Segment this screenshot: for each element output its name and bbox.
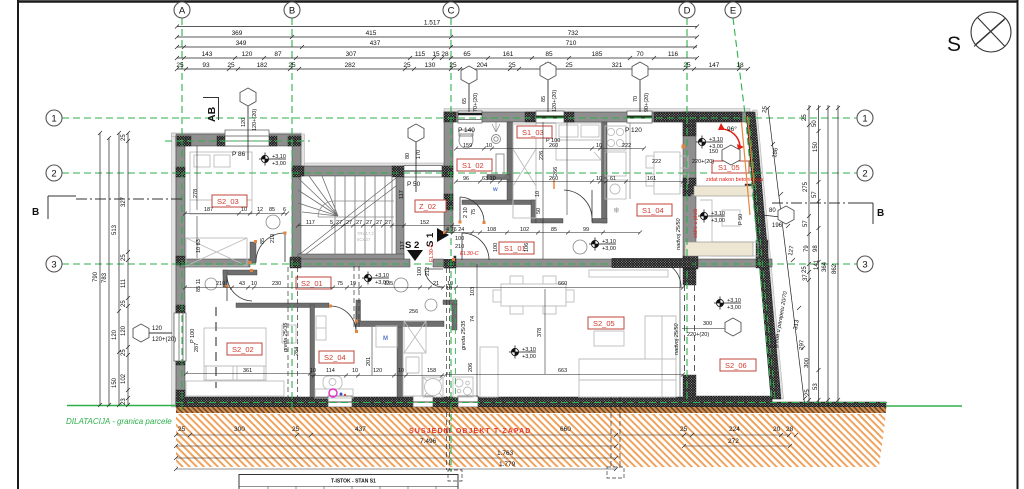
svg-text:230: 230	[272, 281, 281, 287]
svg-text:+3,00: +3,00	[727, 305, 741, 311]
svg-text:50: 50	[812, 120, 818, 127]
svg-text:S1_01: S1_01	[504, 244, 526, 253]
svg-text:212: 212	[425, 267, 431, 276]
svg-text:25: 25	[176, 62, 184, 69]
svg-text:204: 204	[477, 62, 488, 69]
svg-text:Z_02: Z_02	[419, 202, 436, 211]
svg-text:85: 85	[260, 238, 266, 244]
svg-text:E: E	[730, 6, 736, 17]
svg-text:M: M	[383, 336, 388, 342]
svg-text:321: 321	[612, 62, 623, 69]
svg-text:10: 10	[398, 368, 404, 374]
svg-text:57: 57	[812, 191, 818, 198]
svg-text:130: 130	[425, 62, 436, 69]
svg-text:+3,00: +3,00	[602, 246, 616, 252]
svg-text:28: 28	[441, 51, 449, 58]
svg-text:+3,00: +3,00	[272, 161, 286, 167]
svg-text:27: 27	[356, 220, 362, 226]
svg-text:B: B	[289, 6, 295, 17]
svg-text:P 120: P 120	[625, 127, 642, 134]
svg-text:224: 224	[729, 426, 740, 433]
svg-text:275: 275	[803, 181, 809, 192]
svg-text:116: 116	[668, 51, 679, 58]
svg-text:300: 300	[703, 321, 712, 327]
svg-text:85: 85	[545, 51, 553, 58]
svg-text:37: 37	[803, 274, 809, 281]
svg-text:DILATACIJA - granica parcele: DILATACIJA - granica parcele	[66, 417, 172, 426]
svg-text:+3,10: +3,10	[272, 154, 286, 160]
svg-text:349: 349	[236, 40, 247, 47]
svg-text:S2_05: S2_05	[593, 319, 615, 328]
svg-text:18: 18	[736, 62, 744, 69]
svg-text:278: 278	[193, 189, 199, 198]
svg-text:25: 25	[449, 62, 457, 69]
svg-text:6Cx 27: 6Cx 27	[357, 237, 371, 242]
svg-text:27: 27	[376, 220, 382, 226]
svg-text:103: 103	[470, 287, 476, 296]
svg-text:nadvoj 25/50: nadvoj 25/50	[674, 323, 680, 355]
svg-text:P 140: P 140	[458, 127, 475, 134]
svg-text:+3,00: +3,00	[711, 218, 725, 224]
svg-text:660: 660	[560, 426, 571, 433]
svg-text:P 50: P 50	[738, 214, 744, 225]
svg-text:10: 10	[446, 286, 452, 292]
svg-text:10: 10	[251, 281, 257, 287]
svg-text:greda 25/35: greda 25/35	[461, 320, 467, 350]
svg-text:EL30-C: EL30-C	[460, 251, 479, 257]
svg-text:21: 21	[433, 281, 439, 287]
svg-text:96°: 96°	[727, 125, 737, 133]
svg-text:120+(20): 120+(20)	[152, 337, 176, 343]
svg-text:102: 102	[520, 227, 529, 233]
svg-text:135: 135	[384, 281, 393, 287]
svg-text:117: 117	[306, 220, 315, 226]
svg-text:S1_05: S1_05	[718, 163, 740, 172]
svg-text:7.496: 7.496	[420, 438, 437, 445]
svg-text:25: 25	[227, 62, 235, 69]
svg-text:25: 25	[121, 300, 127, 307]
svg-text:220+(20): 220+(20)	[692, 159, 714, 165]
svg-text:117: 117	[399, 190, 405, 199]
svg-text:437: 437	[355, 426, 366, 433]
svg-text:660: 660	[558, 281, 567, 287]
svg-text:307: 307	[346, 51, 357, 58]
svg-text:25: 25	[683, 62, 691, 69]
svg-text:143: 143	[202, 51, 213, 58]
svg-text:256: 256	[409, 309, 418, 315]
svg-text:25: 25	[565, 62, 573, 69]
svg-text:266: 266	[553, 167, 559, 176]
svg-text:S1_04: S1_04	[642, 206, 664, 215]
svg-text:85: 85	[551, 227, 557, 233]
svg-text:65: 65	[462, 98, 468, 104]
svg-text:25: 25	[403, 62, 411, 69]
svg-text:zidat nakon betoniranja: zidat nakon betoniranja	[706, 177, 764, 183]
svg-text:10: 10	[486, 143, 492, 149]
svg-text:222: 222	[622, 143, 631, 149]
svg-text:25: 25	[762, 105, 769, 113]
svg-text:10: 10	[352, 368, 358, 374]
svg-text:1: 1	[862, 114, 867, 125]
svg-text:20: 20	[773, 426, 781, 433]
svg-text:1.763: 1.763	[497, 450, 514, 457]
svg-text:74: 74	[470, 316, 476, 322]
svg-text:222: 222	[652, 159, 661, 165]
svg-text:513: 513	[112, 224, 118, 235]
svg-text:364: 364	[822, 261, 828, 272]
svg-text:80: 80	[405, 153, 411, 159]
svg-text:sidro u ploči: sidro u ploči	[693, 209, 699, 238]
svg-text:378: 378	[537, 328, 543, 337]
svg-text:27: 27	[366, 220, 372, 226]
svg-text:710: 710	[566, 40, 577, 47]
svg-text:102: 102	[121, 373, 127, 384]
svg-text:120: 120	[241, 118, 247, 127]
svg-text:+3,00: +3,00	[522, 354, 536, 360]
svg-text:25: 25	[680, 426, 688, 433]
svg-text:70: 70	[633, 96, 639, 102]
svg-text:201: 201	[366, 357, 372, 366]
svg-text:85 11: 85 11	[196, 279, 202, 292]
svg-text:S2_04: S2_04	[324, 353, 346, 362]
svg-text:+3,10: +3,10	[602, 239, 616, 245]
svg-text:98: 98	[813, 245, 819, 252]
svg-text:AB: AB	[206, 106, 218, 122]
svg-text:S2_06: S2_06	[725, 361, 747, 370]
svg-text:70: 70	[636, 51, 644, 58]
svg-text:300: 300	[234, 426, 245, 433]
svg-text:147: 147	[709, 62, 720, 69]
svg-text:150: 150	[813, 141, 819, 152]
svg-text:S 2: S 2	[405, 240, 419, 251]
svg-text:87: 87	[274, 51, 282, 58]
svg-text:28: 28	[786, 426, 794, 433]
svg-text:327: 327	[121, 196, 127, 207]
svg-text:185: 185	[592, 51, 603, 58]
svg-text:187: 187	[204, 207, 213, 213]
svg-text:65: 65	[463, 51, 471, 58]
svg-text:120: 120	[121, 325, 127, 336]
svg-text:108: 108	[487, 227, 496, 233]
svg-text:114: 114	[326, 368, 335, 374]
svg-text:75: 75	[337, 281, 343, 287]
svg-text:120: 120	[373, 368, 382, 374]
svg-text:3: 3	[862, 260, 867, 271]
svg-text:862: 862	[832, 263, 838, 274]
svg-text:C: C	[448, 6, 455, 17]
svg-text:25: 25	[288, 62, 296, 69]
svg-text:P 100: P 100	[190, 329, 196, 343]
svg-text:117: 117	[400, 241, 406, 250]
svg-text:220+(20): 220+(20)	[687, 332, 709, 338]
svg-text:287: 287	[194, 343, 200, 352]
svg-text:23: 23	[121, 398, 127, 405]
svg-text:15: 15	[432, 51, 440, 58]
svg-text:D: D	[684, 6, 691, 17]
svg-text:6: 6	[283, 207, 286, 213]
svg-text:369: 369	[232, 30, 243, 37]
svg-text:P 50: P 50	[407, 181, 421, 188]
svg-text:2: 2	[862, 169, 867, 180]
svg-text:25: 25	[121, 349, 127, 356]
svg-text:25: 25	[805, 389, 811, 396]
svg-text:w: w	[492, 187, 498, 193]
svg-text:206: 206	[468, 363, 474, 372]
svg-text:663: 663	[558, 368, 567, 374]
svg-text:120: 120	[152, 326, 163, 332]
svg-text:61: 61	[610, 176, 616, 182]
svg-text:297: 297	[799, 339, 806, 350]
svg-text:27: 27	[336, 220, 342, 226]
svg-text:1.517: 1.517	[424, 20, 441, 27]
svg-text:25: 25	[802, 114, 808, 121]
svg-text:182: 182	[257, 62, 268, 69]
svg-text:100: 100	[455, 236, 464, 242]
svg-text:S1_02: S1_02	[462, 161, 484, 170]
svg-text:19: 19	[350, 281, 356, 287]
svg-text:25: 25	[178, 426, 186, 433]
svg-text:+3,10: +3,10	[522, 347, 536, 353]
svg-text:272: 272	[728, 438, 739, 445]
svg-text:85: 85	[541, 96, 547, 102]
svg-text:3: 3	[51, 260, 56, 271]
svg-text:43: 43	[239, 281, 245, 287]
svg-text:10: 10	[241, 207, 247, 213]
svg-text:115: 115	[415, 51, 426, 58]
svg-text:63 10: 63 10	[482, 176, 496, 182]
svg-text:27: 27	[346, 220, 352, 226]
svg-text:70+(20): 70+(20)	[473, 93, 479, 112]
svg-text:27: 27	[385, 220, 391, 226]
svg-text:85: 85	[269, 207, 275, 213]
svg-text:196: 196	[772, 223, 783, 229]
svg-text:SUSJEDNI OBJEKT T-ZAPAD: SUSJEDNI OBJEKT T-ZAPAD	[409, 428, 531, 435]
svg-text:B: B	[877, 208, 884, 219]
svg-text:120+(20): 120+(20)	[252, 109, 258, 131]
svg-text:210: 210	[270, 234, 276, 243]
svg-text:120: 120	[242, 51, 253, 58]
svg-text:111: 111	[121, 278, 127, 288]
svg-text:120+(20): 120+(20)	[552, 90, 558, 112]
svg-text:783: 783	[102, 272, 108, 283]
svg-text:150: 150	[709, 149, 718, 155]
svg-text:EL30-C: EL30-C	[429, 243, 435, 262]
svg-text:S1_03: S1_03	[522, 128, 544, 137]
svg-text:75: 75	[471, 209, 477, 215]
svg-text:96: 96	[463, 176, 469, 182]
svg-text:161: 161	[503, 51, 514, 58]
svg-text:P 86: P 86	[232, 151, 246, 158]
svg-text:10: 10	[535, 191, 541, 197]
svg-text:S2_02: S2_02	[232, 345, 254, 354]
svg-text:300: 300	[804, 357, 810, 368]
svg-text:10 63: 10 63	[196, 239, 202, 253]
svg-text:284: 284	[294, 347, 300, 356]
svg-text:53: 53	[813, 383, 819, 390]
svg-text:50: 50	[536, 208, 542, 214]
svg-text:A: A	[179, 6, 186, 17]
svg-text:S2_01: S2_01	[301, 279, 323, 288]
svg-text:+3,10: +3,10	[375, 273, 389, 279]
svg-text:120: 120	[112, 329, 118, 340]
svg-text:361: 361	[243, 368, 252, 374]
svg-text:141: 141	[814, 259, 820, 270]
svg-text:+3,10: +3,10	[727, 298, 741, 304]
svg-text:12: 12	[257, 207, 263, 213]
svg-text:152: 152	[420, 220, 429, 226]
svg-text:57: 57	[803, 220, 809, 227]
svg-text:+3,10: +3,10	[711, 211, 725, 217]
svg-text:161: 161	[647, 176, 656, 182]
svg-text:10: 10	[310, 368, 316, 374]
svg-text:10: 10	[596, 143, 602, 149]
svg-text:5: 5	[330, 220, 333, 226]
svg-text:790: 790	[93, 271, 99, 282]
svg-text:25: 25	[508, 62, 516, 69]
svg-text:7Rx 17,2: 7Rx 17,2	[357, 231, 374, 236]
svg-text:437: 437	[370, 40, 381, 47]
svg-text:S2_03: S2_03	[217, 197, 239, 206]
svg-text:25: 25	[292, 426, 300, 433]
svg-text:150: 150	[112, 377, 118, 388]
svg-text:B: B	[32, 207, 39, 218]
svg-text:nadvoj 25/50: nadvoj 25/50	[676, 218, 682, 250]
svg-text:106: 106	[524, 243, 530, 252]
svg-text:P 100: P 100	[546, 138, 560, 144]
svg-text:732: 732	[568, 30, 579, 37]
svg-text:415: 415	[366, 30, 377, 37]
svg-text:99: 99	[583, 227, 589, 233]
svg-text:1.779: 1.779	[499, 461, 516, 468]
svg-text:158: 158	[427, 368, 436, 374]
svg-text:2: 2	[51, 169, 56, 180]
svg-text:170: 170	[416, 150, 422, 159]
svg-text:+3,10: +3,10	[709, 137, 723, 143]
svg-text:100: 100	[493, 243, 499, 252]
svg-text:282: 282	[345, 62, 356, 69]
svg-text:25: 25	[802, 266, 808, 273]
svg-text:100: 100	[417, 267, 423, 276]
svg-text:210: 210	[455, 244, 464, 250]
svg-text:79: 79	[804, 245, 810, 252]
svg-text:1: 1	[51, 114, 56, 125]
svg-text:S: S	[947, 33, 961, 56]
svg-text:❄: ❄	[613, 206, 620, 215]
svg-text:80: 80	[769, 208, 776, 214]
svg-text:2 10: 2 10	[463, 207, 469, 218]
svg-text:25: 25	[121, 254, 127, 261]
svg-text:T-ISTOK - STAN S1: T-ISTOK - STAN S1	[331, 479, 376, 485]
svg-text:10: 10	[596, 176, 602, 182]
svg-text:90+(20): 90+(20)	[644, 93, 650, 112]
svg-text:210: 210	[216, 281, 225, 287]
svg-text:93: 93	[202, 62, 210, 69]
svg-text:4 76 24: 4 76 24	[446, 227, 464, 233]
svg-text:226: 226	[539, 151, 545, 160]
svg-text:25: 25	[121, 134, 127, 141]
svg-text:159: 159	[463, 143, 472, 149]
